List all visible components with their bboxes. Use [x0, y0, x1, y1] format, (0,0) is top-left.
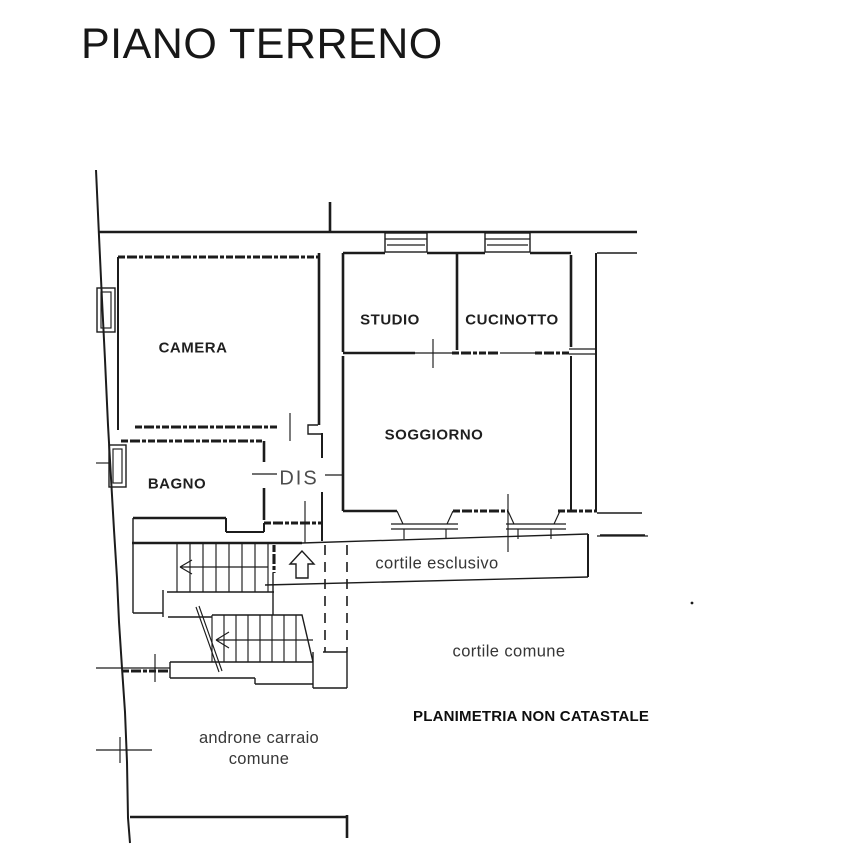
bagno-window-inner	[113, 449, 122, 483]
room-label-dis: DIS	[279, 468, 318, 491]
camera-left-window-icon	[97, 288, 115, 332]
stair-treads-lower	[212, 615, 296, 662]
bagno-bottom-step	[226, 518, 264, 532]
androne-wall-tick	[96, 737, 152, 763]
area-label-cortile-comune: cortile comune	[453, 643, 566, 662]
camera-se-notch	[308, 425, 322, 434]
camera-window-outer	[97, 288, 115, 332]
stray-dot	[691, 602, 694, 605]
property-dashed-lines	[325, 545, 347, 652]
cortile-band-bottom	[265, 577, 588, 585]
left-boundary-wall	[96, 170, 130, 843]
floor-plan-page: PIANO TERRENO	[0, 0, 851, 858]
stair-down-arrow-icon	[216, 632, 313, 648]
exterior-wall-tick	[96, 654, 170, 682]
room-label-soggiorno: SOGGIORNO	[385, 427, 484, 444]
window-icon-cucinotto	[485, 233, 530, 252]
cucinotto-right-window-sill	[569, 349, 597, 354]
cortile-band-top	[302, 534, 588, 543]
non-cadastral-note: PLANIMETRIA NON CATASTALE	[413, 708, 649, 725]
window-cucinotto-sill-lines	[485, 239, 530, 245]
window-icon-studio	[385, 233, 427, 252]
entrance-up-arrow-icon	[290, 551, 314, 578]
room-label-cucinotto: CUCINOTTO	[465, 312, 558, 329]
soggiorno-window-a-icon	[391, 511, 458, 539]
stairs-lower-flight	[96, 606, 347, 688]
stairs-right-block	[313, 652, 347, 688]
stairs-lower-outline	[170, 662, 313, 684]
area-label-cortile-esclusivo: cortile esclusivo	[375, 555, 498, 574]
top-window-icons	[385, 233, 530, 252]
area-label-androne: androne carraio comune	[158, 728, 360, 770]
room-label-studio: STUDIO	[360, 312, 420, 329]
androne-label-line2: comune	[158, 749, 360, 770]
room-label-bagno: BAGNO	[148, 476, 206, 493]
room-label-camera: CAMERA	[159, 340, 228, 357]
soggiorno-bottom-wall-group	[343, 494, 597, 552]
window-studio-sill-lines	[385, 239, 427, 245]
neighbor-bottom-lines	[597, 513, 645, 535]
upper-room-walls	[118, 253, 645, 535]
stairs-lower-top-edge	[212, 615, 313, 662]
androne-label-line1: androne carraio	[158, 728, 360, 749]
stairs-upper-flight	[132, 543, 302, 617]
